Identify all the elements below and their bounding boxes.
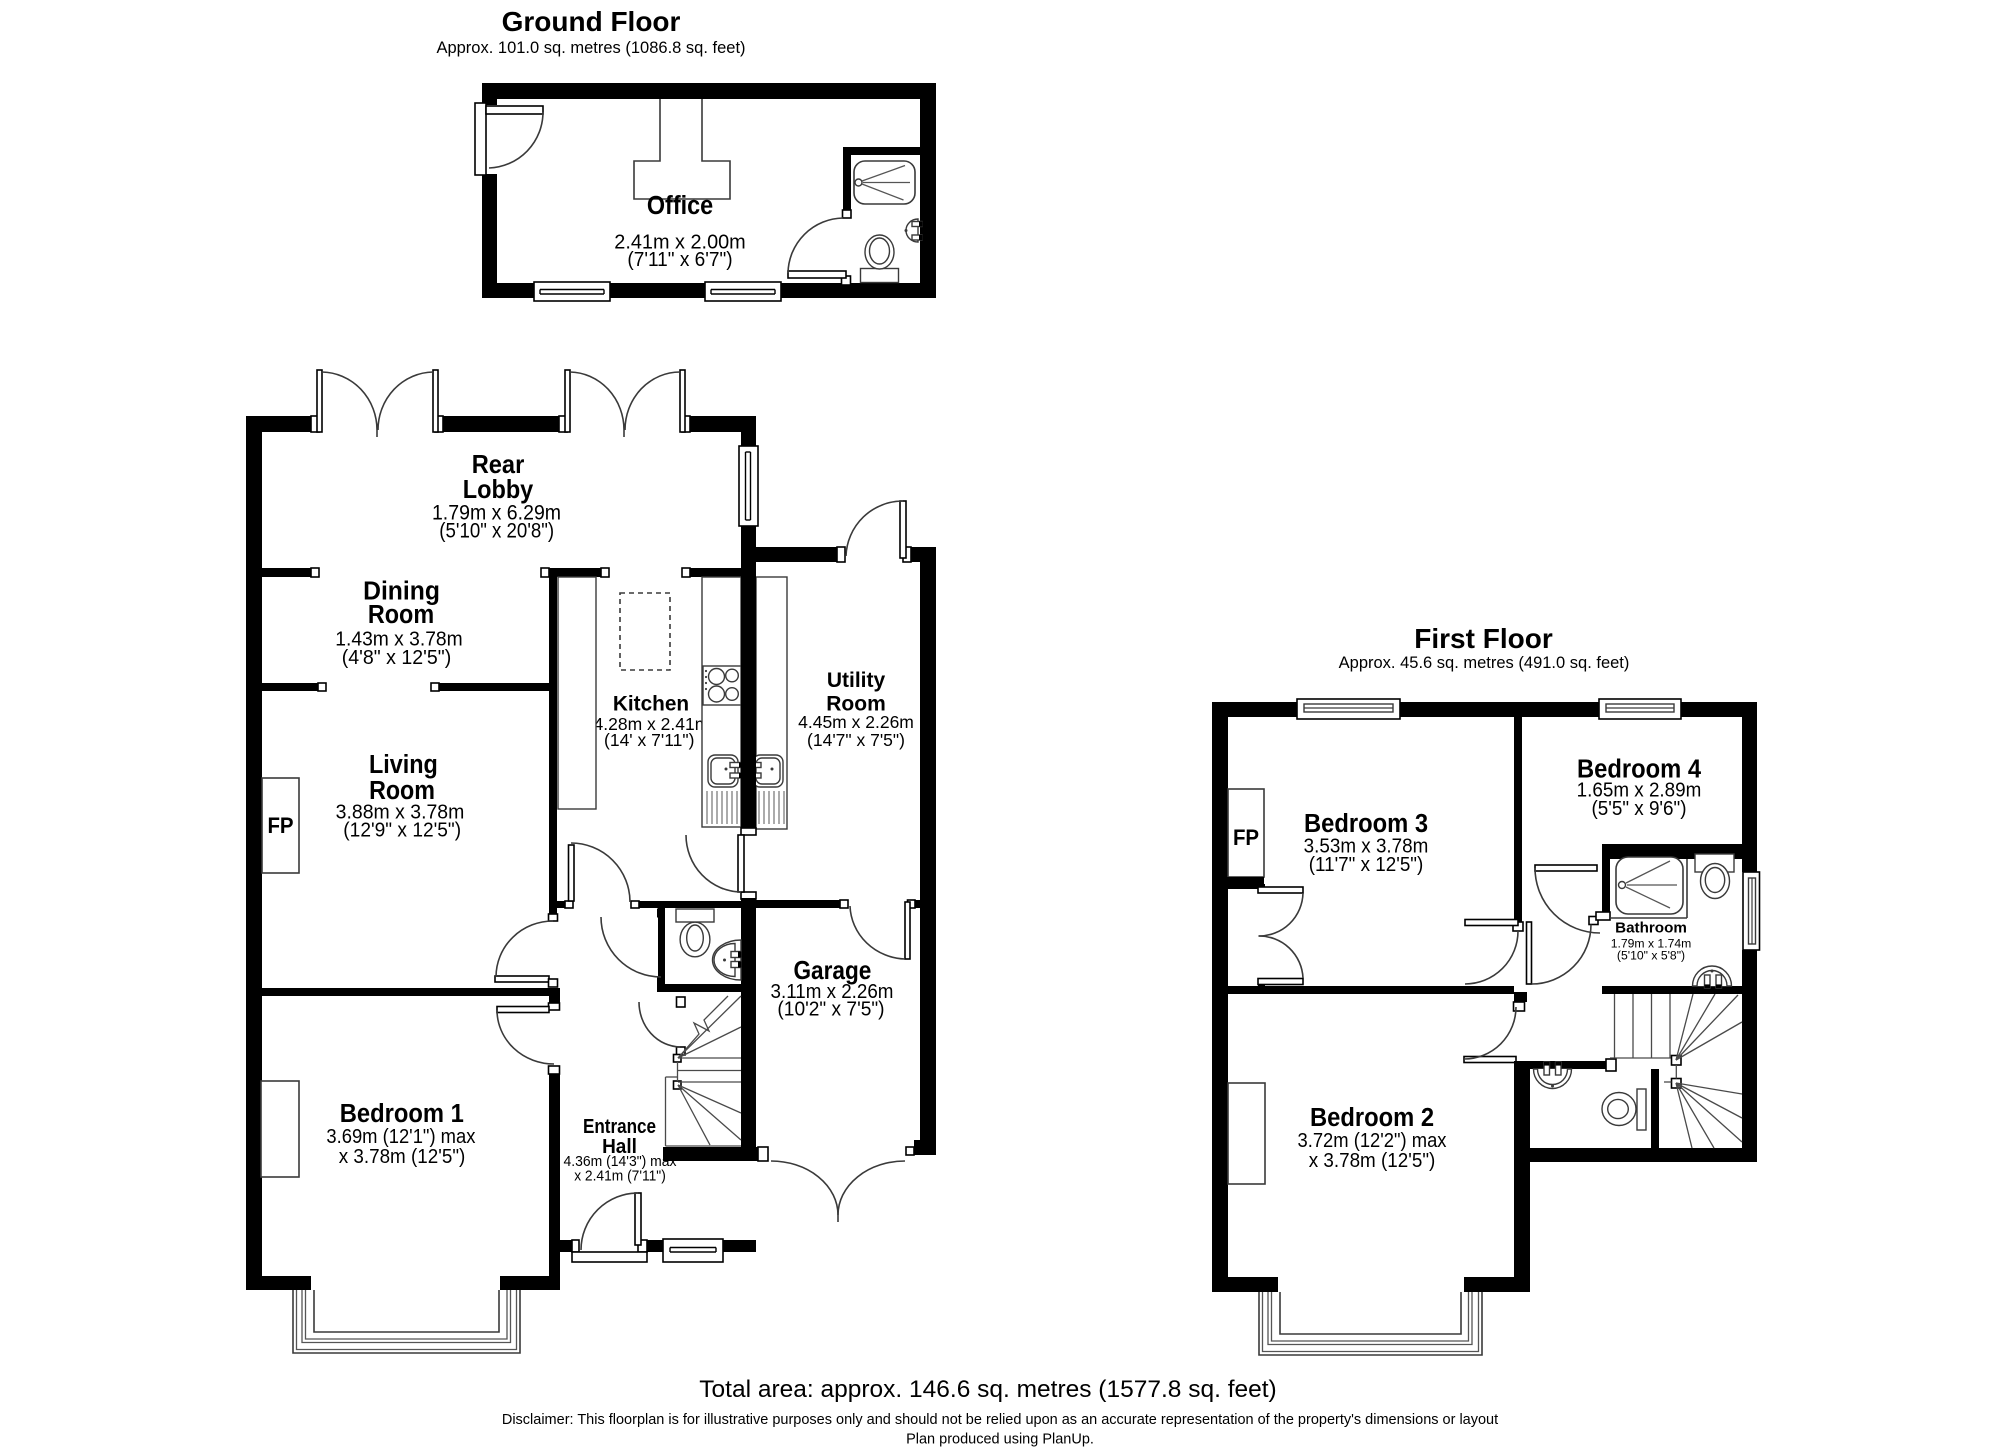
svg-text:4.45m x 2.26m: 4.45m x 2.26m <box>798 712 914 732</box>
svg-text:Ground Floor: Ground Floor <box>502 6 681 37</box>
svg-text:Approx. 101.0 sq. metres (1086: Approx. 101.0 sq. metres (1086.8 sq. fee… <box>436 39 745 57</box>
svg-text:First Floor: First Floor <box>1414 623 1553 654</box>
svg-text:Total area: approx. 146.6 sq.: Total area: approx. 146.6 sq. metres (15… <box>699 1376 1276 1403</box>
svg-text:Disclaimer: This floorplan is: Disclaimer: This floorplan is for illust… <box>502 1412 1498 1428</box>
svg-text:Office: Office <box>647 192 713 220</box>
svg-text:x 3.78m (12'5"): x 3.78m (12'5") <box>1309 1149 1436 1172</box>
svg-text:(4'8" x 12'5"): (4'8" x 12'5") <box>342 647 452 669</box>
svg-text:(14'7" x 7'5"): (14'7" x 7'5") <box>807 730 905 750</box>
svg-text:(5'5" x 9'6"): (5'5" x 9'6") <box>1592 797 1687 820</box>
svg-text:(5'10" x 20'8"): (5'10" x 20'8") <box>439 520 554 543</box>
svg-text:Bathroom: Bathroom <box>1615 920 1687 937</box>
svg-text:(7'11" x 6'7"): (7'11" x 6'7") <box>627 248 732 271</box>
svg-text:x 3.78m (12'5"): x 3.78m (12'5") <box>339 1145 466 1168</box>
svg-text:Bedroom 1: Bedroom 1 <box>340 1099 464 1128</box>
svg-text:Kitchen: Kitchen <box>613 692 689 715</box>
svg-text:Lobby: Lobby <box>463 476 534 504</box>
svg-text:Living: Living <box>369 751 438 779</box>
svg-text:(11'7" x 12'5"): (11'7" x 12'5") <box>1309 853 1424 876</box>
svg-text:FP: FP <box>1233 825 1259 850</box>
svg-text:Approx. 45.6 sq. metres (491.0: Approx. 45.6 sq. metres (491.0 sq. feet) <box>1339 654 1630 672</box>
svg-text:(14' x 7'11"): (14' x 7'11") <box>604 730 694 750</box>
svg-text:x 2.41m (7'11"): x 2.41m (7'11") <box>574 1168 666 1185</box>
svg-text:(12'9" x 12'5"): (12'9" x 12'5") <box>343 819 461 841</box>
svg-text:Bedroom 2: Bedroom 2 <box>1310 1103 1434 1132</box>
svg-text:Plan produced using PlanUp.: Plan produced using PlanUp. <box>906 1432 1094 1448</box>
svg-text:Utility: Utility <box>827 669 886 692</box>
svg-text:Room: Room <box>368 601 434 629</box>
svg-text:(5'10" x 5'8"): (5'10" x 5'8") <box>1617 949 1685 963</box>
svg-text:FP: FP <box>267 813 293 838</box>
svg-text:(10'2" x 7'5"): (10'2" x 7'5") <box>777 998 884 1021</box>
svg-text:Entrance: Entrance <box>583 1115 656 1138</box>
